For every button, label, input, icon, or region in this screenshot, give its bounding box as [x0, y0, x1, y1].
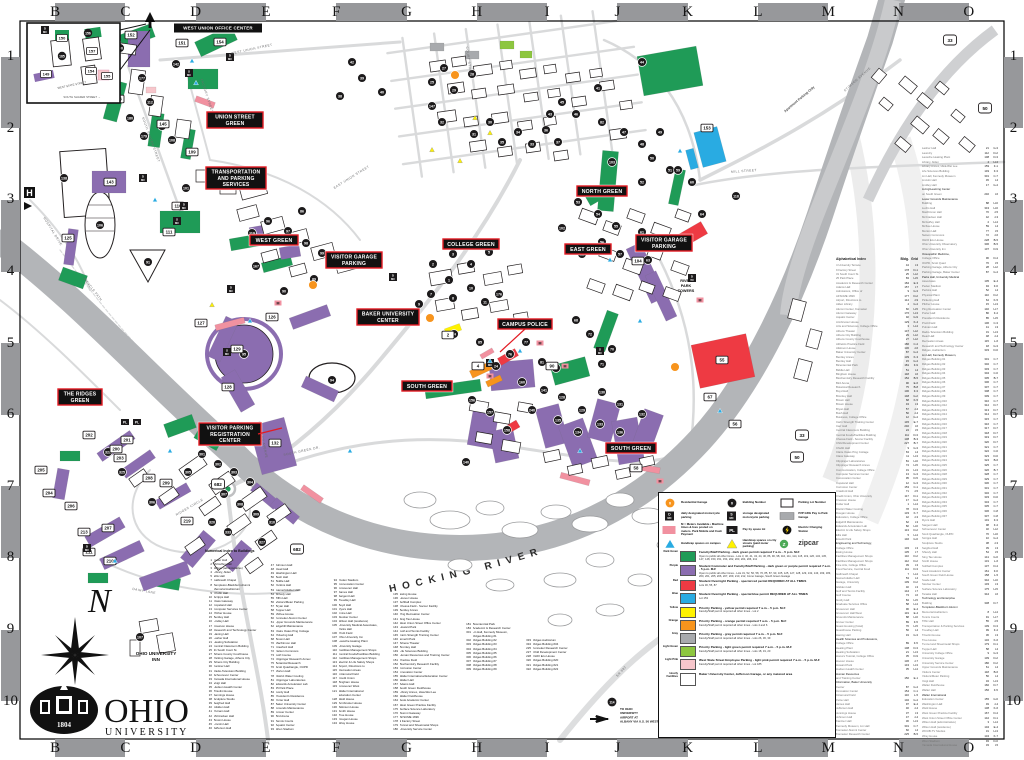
- grid-label: 7: [1004, 451, 1023, 523]
- route-shield-33: 33: [944, 35, 957, 45]
- svg-text:106: 106: [97, 223, 103, 227]
- svg-text:305: 305: [185, 470, 191, 474]
- svg-text:10: 10: [469, 286, 473, 290]
- building-footprint: [497, 84, 514, 95]
- handicap-campus-icon: [153, 197, 158, 201]
- parking-lot-badge: 151: [176, 39, 188, 47]
- region-label: UNION STREETGREEN: [206, 111, 264, 129]
- building-number-badge: 68: [572, 316, 581, 325]
- svg-text:200: 200: [112, 447, 120, 452]
- legend-symbol-label: zipcar: [798, 540, 818, 548]
- svg-text:AND PARKING: AND PARKING: [217, 176, 254, 182]
- svg-text:MC: MC: [667, 516, 671, 520]
- inn-label: OHIO UNIVERSITY INN: [136, 651, 177, 662]
- residential-garage-badge: [451, 71, 460, 80]
- parking-lot-badge: 132: [269, 439, 281, 447]
- svg-text:MC: MC: [229, 289, 233, 293]
- svg-text:50: 50: [794, 455, 800, 460]
- building-number-badge: 303: [230, 468, 239, 477]
- building-number-badge: 45: [558, 98, 567, 107]
- parking-area-pink: [480, 348, 495, 359]
- campus-police-pointer: [500, 329, 525, 352]
- svg-text:91: 91: [146, 260, 150, 264]
- svg-text:129: 129: [233, 347, 241, 352]
- numerical-index-column: 1Cutler Hall2McGuffey Hall3Wilson (admin…: [205, 558, 267, 730]
- svg-text:107: 107: [137, 635, 143, 639]
- svg-text:42: 42: [350, 60, 354, 64]
- building-number-badge: 307: [220, 490, 229, 499]
- grid-label: B: [20, 3, 90, 21]
- svg-text:PL: PL: [123, 420, 127, 424]
- svg-text:153: 153: [703, 126, 711, 131]
- svg-text:205: 205: [37, 468, 45, 473]
- building-number-badge: 180: [126, 114, 135, 123]
- building-footprint: [587, 279, 605, 294]
- svg-text:MC: MC: [228, 57, 232, 61]
- svg-text:39: 39: [360, 76, 364, 80]
- compass-rose: N: [41, 583, 113, 685]
- grid-band-top: BCDEFGHIJKLMNO: [0, 3, 1024, 21]
- building-number-badge: 134: [574, 428, 583, 437]
- building-number-badge: 46: [572, 110, 581, 119]
- building-number-badge: 96: [264, 217, 273, 226]
- building-footprint: [500, 60, 513, 70]
- svg-text:57: 57: [618, 252, 622, 256]
- parking-lot-badge: 2: [442, 331, 454, 339]
- svg-text:4: 4: [470, 262, 472, 266]
- svg-text:86: 86: [300, 209, 304, 213]
- grid-label: 6: [1004, 379, 1023, 451]
- legend-symbol-pl: PLPay by space lot: [724, 525, 780, 535]
- route-shield-682: 682: [291, 544, 304, 554]
- building-number-badge: 44: [638, 58, 647, 67]
- legend-row-label: Yellow: [662, 607, 680, 610]
- svg-text:M: M: [277, 301, 280, 305]
- svg-text:MC: MC: [187, 73, 191, 77]
- building-number-badge: 7: [427, 290, 436, 299]
- grid-label: 4: [1004, 236, 1023, 308]
- building-number-badge: 142: [172, 60, 181, 69]
- svg-text:ALBANY VIA U.S. 50 WEST: ALBANY VIA U.S. 50 WEST: [620, 720, 659, 724]
- legend-symbol-row: Handicap spaces on campusHandicap spaces…: [662, 539, 831, 549]
- svg-text:PL: PL: [729, 528, 735, 533]
- grid-label: 2: [1, 93, 20, 165]
- legend-symbol-label: P2P GRG Pay to Park Garage: [798, 512, 831, 519]
- building-number-badge: 167: [252, 262, 261, 271]
- daily-motorcycle-badge: DMC: [139, 174, 147, 182]
- building-number-badge: 158: [503, 426, 512, 435]
- svg-text:48: 48: [640, 142, 644, 146]
- svg-text:50: 50: [982, 106, 988, 111]
- svg-text:40: 40: [380, 90, 384, 94]
- svg-text:160: 160: [519, 380, 525, 384]
- svg-text:TRANSPORTATION: TRANSPORTATION: [212, 170, 261, 176]
- region-label: WEST GREEN: [249, 234, 299, 246]
- hospital-icon: H: [24, 187, 35, 210]
- svg-text:38: 38: [338, 94, 342, 98]
- svg-text:682: 682: [293, 547, 301, 552]
- parking-area-green: [637, 46, 703, 96]
- grid-label: D: [161, 739, 231, 757]
- building-number-badge: 54: [594, 210, 603, 219]
- grid-label: F: [301, 739, 371, 757]
- handicap-campus-icon: [348, 448, 353, 452]
- svg-text:155: 155: [104, 74, 111, 79]
- inset-lot-badge: 157: [87, 48, 98, 55]
- building-footprint: [590, 68, 603, 78]
- svg-text:WEST UNION OFFICE CENTER: WEST UNION OFFICE CENTER: [183, 26, 253, 31]
- svg-text:682: 682: [214, 482, 222, 487]
- building-footprint: [469, 140, 486, 152]
- handicap-street-icon: [458, 158, 463, 162]
- svg-text:310: 310: [269, 520, 275, 524]
- region-label: VISITOR GARAGEPARKING: [325, 251, 383, 269]
- alphabetical-index-column: Lasher Hall21G-3Laundry112D-2Lausche Hea…: [922, 146, 998, 748]
- pay-by-space-badge: PL: [121, 419, 129, 425]
- svg-text:EAST GREEN: EAST GREEN: [570, 247, 606, 253]
- building-number-badge: 71: [598, 360, 607, 369]
- svg-text:SERVICES: SERVICES: [223, 182, 250, 188]
- svg-text:NORTH GREEN: NORTH GREEN: [582, 189, 623, 195]
- grid-band-right: 12345678910: [1004, 21, 1023, 739]
- svg-text:S: S: [176, 217, 178, 221]
- building-number-badge: 131: [616, 400, 625, 409]
- svg-text:97: 97: [286, 229, 290, 233]
- svg-text:103: 103: [609, 160, 615, 164]
- legend-symbol-p2p: P2P GRG Pay to Park Garage: [779, 511, 831, 521]
- building-number-badge: 3: [449, 250, 458, 259]
- lot-icon: [779, 498, 795, 508]
- svg-text:201: 201: [123, 438, 131, 443]
- svg-text:THE RIDGES: THE RIDGES: [64, 392, 97, 398]
- region-label: SOUTH GREEN: [401, 380, 453, 392]
- grid-label: N: [863, 3, 933, 21]
- svg-text:99: 99: [320, 251, 324, 255]
- ev-icon: [779, 525, 795, 535]
- legend-symbol-label: Pay by space lot: [743, 528, 766, 531]
- building-number-badge: 102: [558, 224, 567, 233]
- svg-text:304: 304: [247, 480, 253, 484]
- svg-text:309: 309: [253, 512, 259, 516]
- campus-map-page: { "title": "Ohio University Campus Map",…: [0, 0, 1024, 760]
- svg-text:302: 302: [215, 462, 221, 466]
- handicap-street-icon: [430, 147, 435, 151]
- building-number-badge: 94: [328, 376, 337, 385]
- svg-text:9: 9: [418, 302, 420, 306]
- grid-label: C: [90, 3, 160, 21]
- grid-label: E: [231, 739, 301, 757]
- parking-lot-badge: 213: [78, 528, 90, 536]
- grid-label: 10: [1, 665, 20, 737]
- building-footprint: [671, 261, 689, 276]
- index-entry: 322Ridges Building #22: [524, 667, 582, 671]
- legend-symbol-label: daily designated motorcycle parking: [681, 512, 724, 519]
- grid-label: 9: [1, 594, 20, 666]
- region-label: SOUTH GREEN: [605, 442, 657, 454]
- svg-text:MC: MC: [141, 178, 145, 182]
- smc-icon: SMC: [724, 511, 740, 521]
- building-number-badge: 135: [554, 416, 563, 425]
- legend-symbol-ev: Electric Charging Station: [779, 525, 831, 535]
- legend-symbol-label: Handicap spaces on campus: [681, 542, 721, 545]
- parking-lot-badge: 204: [43, 489, 55, 497]
- svg-text:208: 208: [145, 476, 153, 481]
- svg-text:MC: MC: [85, 548, 89, 552]
- legend-row-text: Priority Parking - light green permit re…: [699, 646, 792, 653]
- grid-label: 6: [1, 379, 20, 451]
- svg-text:52: 52: [640, 180, 644, 184]
- grid-label: L: [723, 3, 793, 21]
- parking-area-purple: [100, 540, 145, 569]
- parking-lot-badge: 129: [231, 345, 243, 353]
- building-footprint: [497, 146, 512, 157]
- inset-lot-badge: 154: [86, 68, 97, 75]
- svg-text:63: 63: [646, 258, 650, 262]
- building-number-badge: 129: [578, 406, 587, 415]
- legend-symbol-label: Electric Charging Station: [798, 526, 831, 533]
- grid-label: E: [231, 3, 301, 21]
- parking-area-green: [88, 573, 108, 583]
- garage-icon: 0: [662, 498, 678, 508]
- parking-lot-badge: 4: [472, 362, 484, 370]
- building-number-badge: 49: [656, 128, 665, 137]
- region-label: TRANSPORTATIONAND PARKINGSERVICES: [205, 166, 267, 190]
- building-number-badge: 41: [594, 84, 603, 93]
- svg-text:33: 33: [530, 142, 534, 146]
- building-footprint: [451, 56, 466, 67]
- svg-text:CENTER: CENTER: [377, 318, 399, 324]
- svg-text:25: 25: [430, 80, 434, 84]
- svg-text:50: 50: [650, 156, 654, 160]
- building-footprint: [565, 72, 580, 83]
- parking-lot-badge: 67: [704, 393, 716, 401]
- region-label: EAST GREEN: [564, 243, 612, 255]
- grid-label: B: [20, 739, 90, 757]
- svg-text:126: 126: [268, 315, 276, 320]
- svg-text:GREEN: GREEN: [71, 398, 90, 404]
- legend-row: BlueStudent Overnight Parking - special …: [662, 593, 831, 604]
- parking-area-gray: [430, 43, 444, 51]
- meter-icon: [662, 525, 678, 535]
- svg-text:5: 5: [488, 250, 490, 254]
- building-number-badge: 11: [481, 298, 490, 307]
- parking-lot-badge: 56: [729, 420, 741, 428]
- legend-symbol-label: storage designated motorcycle parking: [743, 512, 780, 519]
- svg-text:61: 61: [640, 230, 644, 234]
- legend-row: OrangePriority Parking - orange permit r…: [662, 620, 831, 631]
- svg-text:PL: PL: [135, 420, 139, 424]
- legend-symbol-building: 0Building Number: [724, 498, 780, 508]
- numerical-index-column: 181Bicentennial Park184Academic & Resear…: [464, 622, 524, 671]
- parking-lot-badge: 203: [114, 454, 126, 462]
- place-label: WEST UNION OFFICE CENTER: [173, 22, 263, 33]
- svg-text:157: 157: [487, 410, 493, 414]
- legend-row-text: Student Overnight Parking - special blue…: [699, 593, 808, 600]
- grid-label: L: [723, 739, 793, 757]
- svg-text:308: 308: [237, 502, 243, 506]
- pay-by-space-badge: PL: [133, 419, 141, 425]
- building-number-badge: 107: [136, 633, 145, 642]
- svg-text:327: 327: [259, 540, 265, 544]
- building-number-badge: 320: [208, 518, 217, 527]
- svg-text:111: 111: [166, 230, 173, 235]
- route-shield-50: 50: [791, 452, 804, 462]
- region-label: VISITOR PARKINGREGISTRATIONCENTER: [198, 422, 262, 446]
- building-number-badge: 176: [495, 290, 504, 299]
- parking-lot-badge: 200: [110, 445, 122, 453]
- grid-label: I: [512, 3, 582, 21]
- residential-garage-badge: [309, 281, 318, 290]
- building-number-badge: 106: [96, 221, 105, 230]
- svg-text:55: 55: [614, 224, 618, 228]
- legend-row-label: Light Green: [662, 646, 680, 649]
- index-entry: 180University Service Center: [391, 727, 455, 731]
- building-number-badge: 36: [542, 126, 551, 135]
- legend-symbol-label: Handicap spaces on city streets (paid me…: [743, 539, 780, 549]
- parking-lot-badge: 208: [143, 474, 155, 482]
- building-number-badge: 57: [616, 250, 625, 259]
- svg-text:320: 320: [209, 520, 215, 524]
- parking-area-light_green: [500, 41, 514, 49]
- svg-text:128: 128: [559, 395, 565, 399]
- building-footprint: [507, 264, 522, 275]
- svg-text:S: S: [188, 69, 190, 73]
- svg-text:M: M: [564, 364, 567, 368]
- building-number-badge: 34: [514, 128, 523, 137]
- building-footprint: [489, 300, 508, 313]
- legend-row-text: Student Overnight Parking - special red …: [699, 580, 806, 587]
- legend-symbol-zipcar: Zzipcar: [779, 539, 831, 549]
- svg-text:CAMPUS POLICE: CAMPUS POLICE: [502, 322, 548, 328]
- svg-text:156: 156: [469, 398, 475, 402]
- svg-text:M: M: [489, 374, 492, 378]
- grid-band-left: 12345678910: [1, 21, 20, 739]
- svg-text:98: 98: [304, 241, 308, 245]
- svg-text:240: 240: [529, 408, 535, 412]
- svg-text:96: 96: [266, 219, 270, 223]
- svg-text:142: 142: [173, 62, 179, 66]
- svg-text:306: 306: [149, 500, 155, 504]
- svg-text:MC: MC: [225, 352, 229, 356]
- svg-text:VISITOR PARKING: VISITOR PARKING: [207, 426, 254, 432]
- parking-area-green: [60, 451, 80, 461]
- legend-row-label: Hourly Facilities: [662, 673, 680, 679]
- building-footprint: [675, 209, 691, 222]
- building-number-badge: 81: [538, 358, 547, 367]
- handicap-campus-icon: [638, 318, 643, 322]
- grid-label: K: [653, 3, 723, 21]
- legend-row-label: Dark Green: [662, 551, 680, 554]
- legend-row: Hourly FacilitiesBaker University Center…: [662, 673, 831, 686]
- svg-text:104: 104: [634, 259, 642, 264]
- building-number-badge: 52: [638, 178, 647, 187]
- parking-area-light_green: [520, 51, 532, 58]
- building-footprint: [951, 109, 965, 123]
- grid-label: G: [371, 3, 441, 21]
- parking-lot-badge: 209: [160, 479, 172, 487]
- route-shield-33: 33: [796, 430, 809, 440]
- storage-motorcycle-badge: SMC: [173, 217, 181, 225]
- svg-text:37: 37: [556, 140, 560, 144]
- building-number-badge: 141: [540, 386, 549, 395]
- svg-text:51: 51: [668, 168, 672, 172]
- building-number-badge: 1: [445, 276, 454, 285]
- legend-row-text: Faculty/Staff Parking - dark green permi…: [699, 551, 831, 561]
- building-number-badge: 138: [60, 174, 69, 183]
- grid-label: K: [653, 739, 723, 757]
- building-number-badge: 64: [698, 210, 707, 219]
- street-label: EAST UNION STREET: [333, 164, 370, 189]
- building-number-badge: 85: [476, 338, 485, 347]
- meter-badge: M: [562, 364, 569, 369]
- building-number-badge: 306: [148, 498, 157, 507]
- meter-badge: M: [657, 479, 664, 484]
- svg-text:68: 68: [574, 318, 578, 322]
- building-number-badge: 27: [440, 64, 449, 73]
- dmc-icon: DMC: [662, 511, 678, 521]
- building-number-badge: 302: [214, 460, 223, 469]
- svg-text:BAKER UNIVERSITY: BAKER UNIVERSITY: [362, 312, 415, 318]
- parking-lot-badge: 207: [102, 524, 114, 532]
- numerical-index-column: 47Johnson Hall48Read Hall49Washington Ha…: [267, 563, 329, 731]
- legend-symbols: 0Residential Garage0Building NumberParki…: [662, 498, 831, 549]
- grid-label: 4: [1, 236, 20, 308]
- parking-lot-badge: 125: [62, 234, 74, 242]
- svg-text:60: 60: [690, 180, 694, 184]
- svg-text:MC: MC: [182, 206, 186, 210]
- grid-label: D: [161, 3, 231, 21]
- building-number-badge: 47: [620, 128, 629, 137]
- legend-symbol-label: Building Number: [743, 501, 766, 504]
- parking-lot-badge: 206: [65, 502, 77, 510]
- building-footprint: [627, 209, 645, 224]
- grid-label: J: [582, 3, 652, 21]
- building-number-badge: 48: [638, 140, 647, 149]
- daily-motorcycle-badge: DMC: [180, 202, 188, 210]
- svg-text:MC: MC: [729, 516, 733, 520]
- legend-row-text: Priority Parking - orange permit require…: [699, 620, 786, 627]
- legend-symbol-hcampus: Handicap spaces on campus: [662, 539, 724, 549]
- building-number-badge: 147: [428, 102, 437, 111]
- parking-area-purple: [279, 244, 301, 259]
- svg-text:141: 141: [541, 388, 547, 392]
- parking-lot-badge: 153: [701, 124, 713, 132]
- svg-text:128: 128: [224, 385, 232, 390]
- legend-symbol-dmc: DMCdaily designated motorcycle parking: [662, 511, 724, 521]
- building-number-badge: 304: [246, 478, 255, 487]
- building-number-badge: 133: [596, 420, 605, 429]
- building-number-badge: 118: [732, 192, 741, 201]
- svg-text:1804: 1804: [57, 721, 72, 729]
- building-number-badge: 35: [498, 138, 507, 147]
- legend-color-chip: [680, 633, 696, 644]
- svg-text:55: 55: [720, 358, 725, 363]
- residential-garage-badge: [426, 314, 435, 323]
- building-number-badge: 130: [598, 388, 607, 397]
- grid-label: H: [442, 3, 512, 21]
- svg-text:UNION STREET: UNION STREET: [215, 115, 255, 121]
- svg-text:203: 203: [116, 456, 124, 461]
- grid-label: 8: [1, 522, 20, 594]
- building-number-badge: 112: [146, 98, 155, 107]
- inset-street-label: SOUTH SHAFER STREET →: [63, 95, 100, 99]
- building-footprint: [806, 329, 822, 349]
- apartment-parking-note: Apartment Parking Only: [783, 85, 815, 113]
- parking-lot-badge: 109: [186, 148, 198, 156]
- grid-label: 7: [1, 451, 20, 523]
- svg-text:S: S: [226, 348, 228, 352]
- parking-lot-badge: 154: [214, 38, 226, 46]
